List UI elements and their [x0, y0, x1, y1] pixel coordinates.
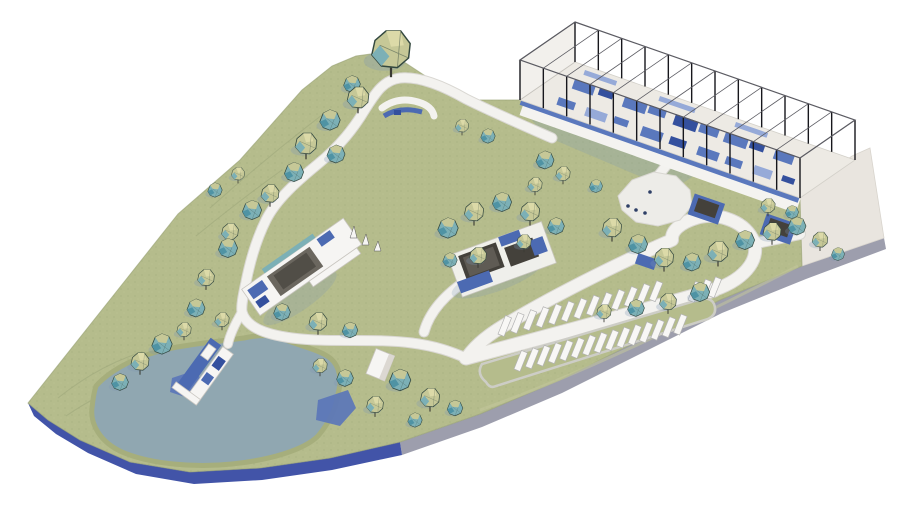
person-figure	[643, 211, 647, 215]
person-figure	[634, 208, 638, 212]
site-plan-rendering: architectural-site-masterplan-3d-renderi…	[0, 0, 900, 506]
person-figure	[648, 190, 652, 194]
person-figure	[626, 204, 630, 208]
